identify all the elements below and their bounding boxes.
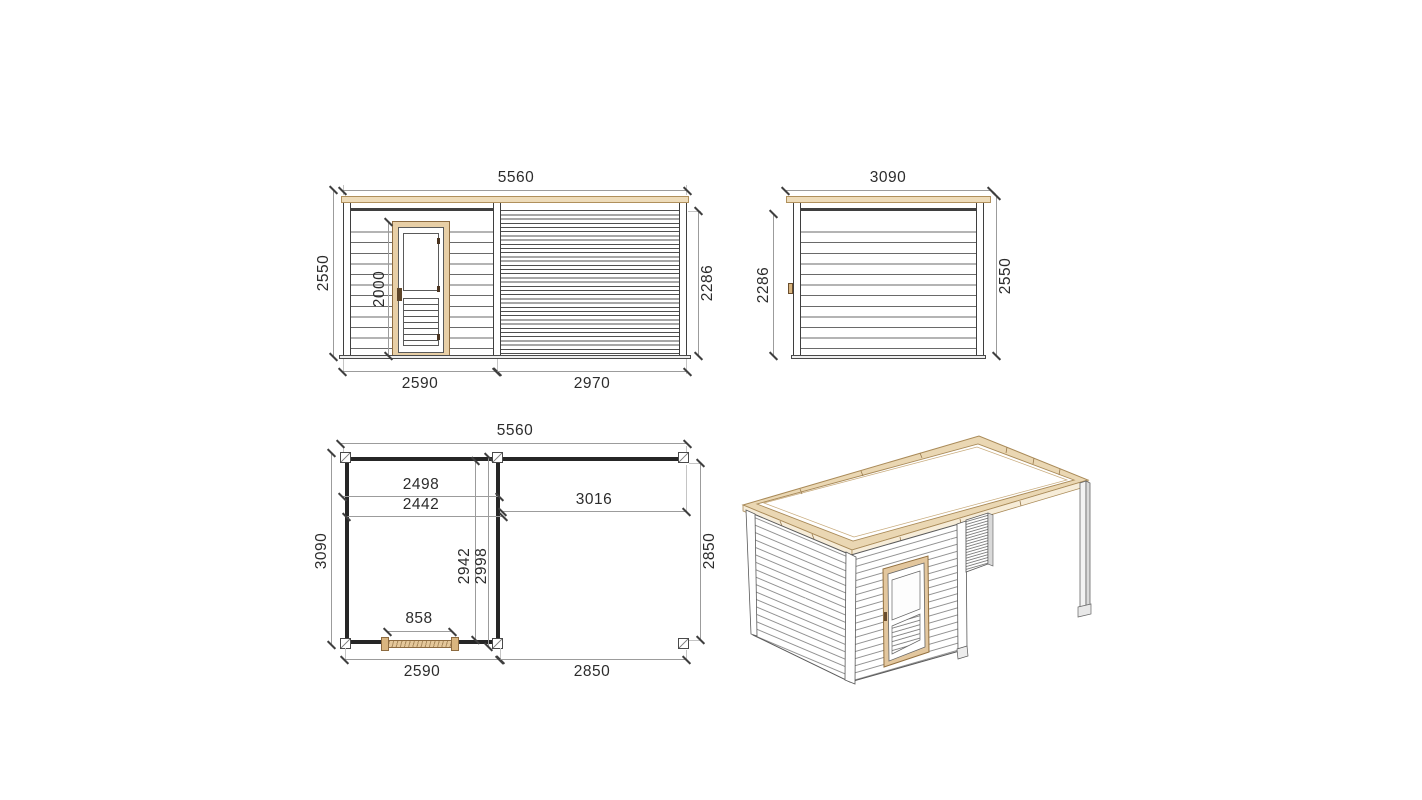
plan-post xyxy=(678,452,689,463)
dim-label-plan-width-total: 5560 xyxy=(497,422,533,440)
wall-left xyxy=(345,457,349,644)
floor-plan-view: 5560 2498 2442 3016 2942 2998 858 xyxy=(0,0,1422,800)
dim-line-door-width xyxy=(388,631,452,632)
dim-line-inner-width-b xyxy=(347,516,503,517)
plan-door-symbol xyxy=(388,640,452,648)
dim-label-plan-cabin-width: 2590 xyxy=(404,663,440,681)
pergola-post-side xyxy=(1086,481,1090,610)
iso-louver-panel-side xyxy=(988,513,993,566)
plan-post xyxy=(492,638,503,649)
wall-top xyxy=(345,457,683,461)
dim-label-inner-width-a: 2498 xyxy=(403,476,439,494)
corner-board-right xyxy=(957,521,967,652)
dim-line-annex-inner-width xyxy=(503,511,686,512)
corner-board-left xyxy=(746,510,757,636)
dim-line-plan-cabin-width xyxy=(345,659,500,660)
dim-label-plan-depth-overall: 3090 xyxy=(313,533,331,569)
dim-line-plan-depth-overall xyxy=(331,453,332,645)
corner-board-middle xyxy=(845,552,856,684)
dim-label-door-width: 858 xyxy=(405,610,432,628)
dim-label-annex-inner-width: 3016 xyxy=(576,491,612,509)
plan-post xyxy=(678,638,689,649)
dim-label-plan-annex-width: 2850 xyxy=(574,663,610,681)
pergola-post-front xyxy=(1080,481,1086,610)
dim-label-annex-depth: 2850 xyxy=(701,533,719,569)
extension-line xyxy=(686,465,687,511)
iso-door-handle xyxy=(884,612,887,621)
plan-post xyxy=(492,452,503,463)
dim-line-plan-width-total xyxy=(341,443,687,444)
plan-post xyxy=(340,452,351,463)
isometric-view xyxy=(725,425,1125,705)
dim-label-inner-depth-a: 2942 xyxy=(456,548,474,584)
dim-label-inner-width-b: 2442 xyxy=(403,496,439,514)
wall-middle xyxy=(496,457,500,644)
dim-label-inner-depth-b: 2998 xyxy=(473,548,491,584)
technical-drawing-canvas: 5560 2000 2550 2286 xyxy=(0,0,1422,800)
iso-louver-panel xyxy=(966,513,988,572)
plan-door-jamb xyxy=(451,637,459,651)
dim-line-plan-annex-width xyxy=(500,659,686,660)
